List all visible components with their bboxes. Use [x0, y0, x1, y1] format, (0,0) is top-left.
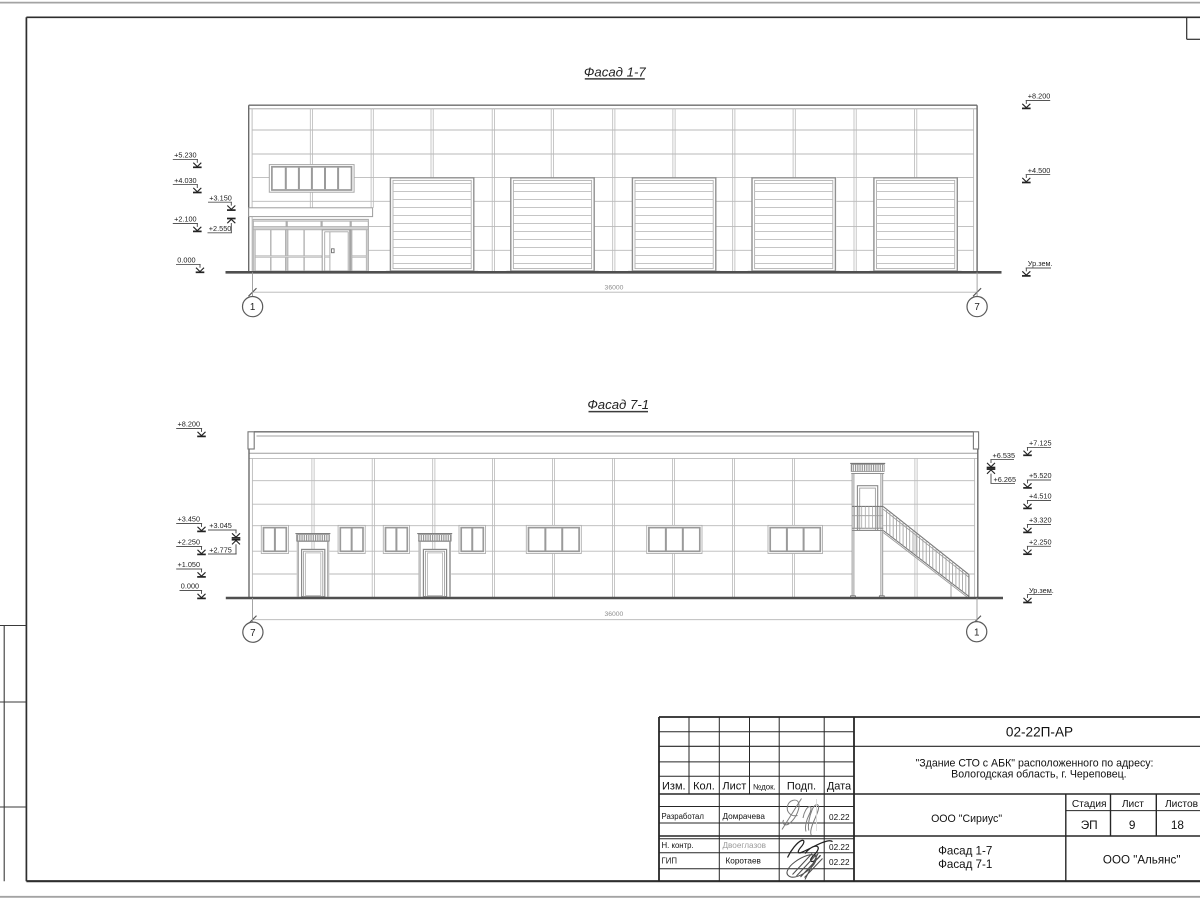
svg-text:Ур.зем.: Ур.зем.	[1028, 259, 1053, 268]
svg-text:+5.520: +5.520	[1029, 471, 1052, 480]
svg-text:+4.030: +4.030	[174, 176, 197, 185]
svg-text:Двоеглазов: Двоеглазов	[723, 841, 767, 850]
svg-text:Фасад 1-7: Фасад 1-7	[938, 845, 992, 858]
svg-text:7: 7	[974, 302, 979, 313]
svg-text:+2.100: +2.100	[174, 215, 197, 224]
svg-text:+8.200: +8.200	[1028, 92, 1051, 101]
svg-text:Изм.: Изм.	[662, 781, 686, 793]
svg-text:+3.045: +3.045	[209, 521, 232, 530]
svg-text:ГИП: ГИП	[662, 857, 677, 866]
svg-text:Фасад 7-1: Фасад 7-1	[587, 397, 649, 412]
svg-text:Разработал: Разработал	[662, 812, 705, 821]
svg-text:№док.: №док.	[753, 783, 776, 792]
svg-text:Н. контр.: Н. контр.	[662, 841, 694, 850]
svg-text:+6.535: +6.535	[993, 451, 1016, 460]
svg-text:+3.320: +3.320	[1029, 516, 1052, 525]
svg-text:1: 1	[250, 302, 255, 313]
svg-text:Кол.: Кол.	[693, 781, 715, 793]
svg-text:Фасад 7-1: Фасад 7-1	[938, 858, 992, 871]
svg-text:1: 1	[974, 627, 979, 638]
svg-text:+2.550: +2.550	[209, 224, 232, 233]
svg-text:+1.050: +1.050	[178, 560, 201, 569]
svg-text:+2.775: +2.775	[209, 545, 232, 554]
svg-text:7: 7	[250, 628, 255, 639]
svg-text:+3.150: +3.150	[209, 193, 232, 202]
svg-text:Коротаев: Коротаев	[726, 857, 761, 866]
svg-text:ООО "Альянс": ООО "Альянс"	[1103, 854, 1181, 867]
svg-text:Фасад 1-7: Фасад 1-7	[584, 65, 646, 80]
svg-text:Листов: Листов	[1165, 799, 1198, 810]
svg-text:+4.500: +4.500	[1028, 166, 1051, 175]
svg-text:+3.450: +3.450	[178, 515, 201, 524]
svg-text:02-22П-АР: 02-22П-АР	[1006, 725, 1073, 740]
svg-text:ООО "Сириус": ООО "Сириус"	[931, 813, 1002, 825]
svg-text:9: 9	[1129, 818, 1136, 832]
svg-text:Лист: Лист	[722, 781, 746, 793]
svg-text:ЭП: ЭП	[1081, 818, 1098, 832]
svg-text:Вологодская область, г. Черепо: Вологодская область, г. Череповец.	[951, 769, 1126, 781]
svg-text:+6.265: +6.265	[994, 475, 1017, 484]
svg-text:18: 18	[1171, 818, 1185, 832]
svg-text:+7.125: +7.125	[1029, 439, 1052, 448]
svg-text:Домрачева: Домрачева	[723, 812, 766, 821]
svg-text:02.22: 02.22	[829, 813, 850, 822]
svg-text:Ур.зем.: Ур.зем.	[1029, 586, 1054, 595]
svg-text:36000: 36000	[605, 284, 624, 291]
svg-text:0.000: 0.000	[177, 256, 195, 265]
svg-text:+5.230: +5.230	[174, 151, 197, 160]
svg-text:Стадия: Стадия	[1072, 799, 1107, 810]
svg-text:0.000: 0.000	[181, 582, 199, 591]
svg-text:+4.510: +4.510	[1029, 492, 1052, 501]
svg-text:02.22: 02.22	[829, 843, 850, 852]
svg-text:+2.250: +2.250	[1029, 538, 1052, 547]
svg-text:Подп.: Подп.	[787, 781, 816, 793]
svg-text:+2.250: +2.250	[178, 538, 201, 547]
svg-text:Лист: Лист	[1122, 799, 1144, 810]
svg-text:Дата: Дата	[827, 781, 852, 793]
svg-text:02.22: 02.22	[829, 858, 850, 867]
svg-text:+8.200: +8.200	[178, 420, 201, 429]
svg-text:36000: 36000	[604, 611, 623, 618]
